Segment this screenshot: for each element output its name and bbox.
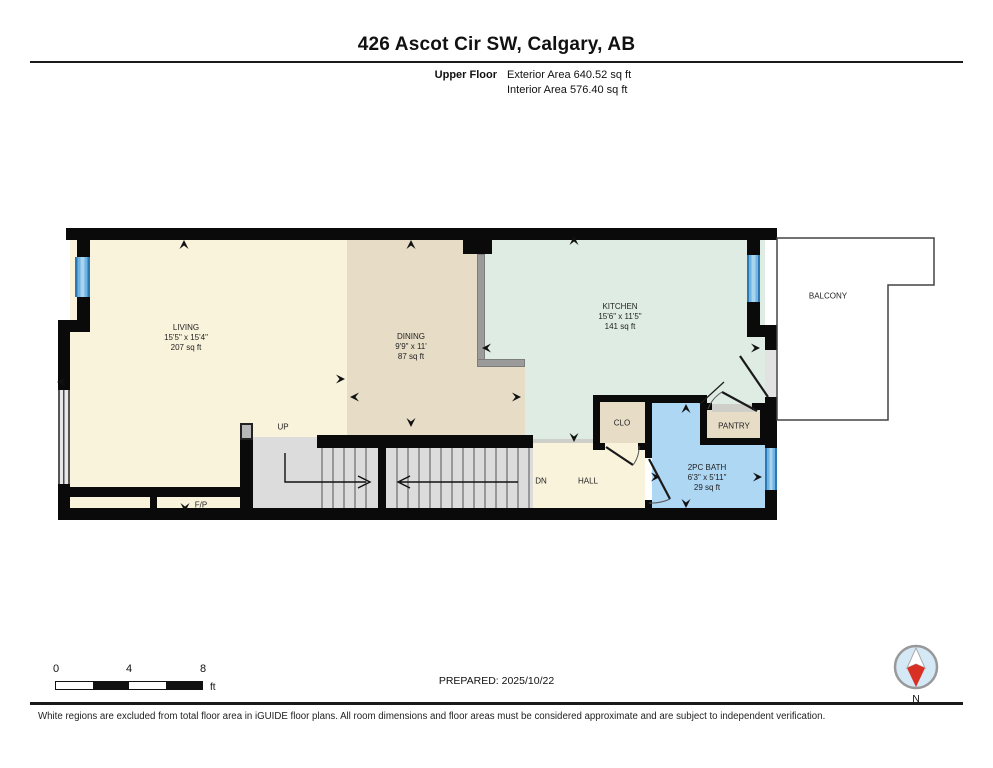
down-label: DN [535, 477, 547, 486]
dim-arrow-living-bottom [181, 503, 190, 512]
bath-label: 2PC BATH 6'3" x 5'11" 29 sq ft [688, 463, 727, 493]
closet-door-arc [633, 446, 639, 465]
pantry-door-leaf [722, 392, 757, 411]
scale-tick-0: 0 [53, 663, 59, 675]
dim-arrow-bath-bottom [682, 499, 691, 508]
dim-arrow-dining-top [407, 240, 416, 249]
stair-treads-right [397, 448, 529, 508]
living-name: LIVING [164, 323, 208, 333]
dim-arrow-dining-left [350, 393, 359, 402]
bath-door-leaf [649, 459, 670, 499]
dining-name: DINING [395, 332, 427, 342]
dim-arrow-dining-bottom [407, 418, 416, 427]
dim-arrow-kitchen-left [482, 344, 491, 353]
prepared-date: PREPARED: 2025/10/22 [0, 675, 993, 687]
stair-treads-left [322, 448, 366, 508]
dim-arrow-bath-left [651, 473, 660, 482]
closet-door-leaf [606, 447, 633, 465]
pantry-label: PANTRY [718, 422, 750, 431]
dim-arrow-dining-right [512, 393, 521, 402]
living-label: LIVING 15'5" x 15'4" 207 sq ft [164, 323, 208, 353]
balcony-outline [777, 238, 934, 420]
bath-name: 2PC BATH [688, 463, 727, 473]
dim-arrow-living-top [180, 240, 189, 249]
dim-arrow-kitchen-right [751, 344, 760, 353]
scale-tick-8: 8 [200, 663, 206, 675]
balcony-door-leaf [740, 356, 768, 397]
kitchen-name: KITCHEN [598, 302, 641, 312]
dim-arrow-kitchen-top [570, 236, 579, 245]
up-label: UP [277, 423, 288, 432]
dim-arrow-living-right [336, 375, 345, 384]
closet-label: CLO [614, 419, 630, 428]
bath-door-arc [649, 499, 670, 503]
dining-label: DINING 9'9" x 11' 87 sq ft [395, 332, 427, 362]
dim-arrow-bath-top [682, 404, 691, 413]
bath-dims: 6'3" x 5'11" [688, 473, 727, 483]
bath-area: 29 sq ft [688, 483, 727, 493]
stair-down-arrow [398, 476, 518, 488]
living-dims: 15'5" x 15'4" [164, 333, 208, 343]
dim-arrow-living-left [57, 378, 66, 387]
footer-rule [30, 702, 963, 705]
balcony-label: BALCONY [809, 292, 847, 301]
dining-area: 87 sq ft [395, 352, 427, 362]
fireplace-label: F/P [195, 501, 207, 510]
kitchen-area: 141 sq ft [598, 322, 641, 332]
kitchen-dims: 15'6" x 11'5" [598, 312, 641, 322]
living-area: 207 sq ft [164, 343, 208, 353]
dim-arrow-bath-right [753, 473, 762, 482]
dining-dims: 9'9" x 11' [395, 342, 427, 352]
plan-overlay [0, 0, 993, 768]
kitchen-label: KITCHEN 15'6" x 11'5" 141 sq ft [598, 302, 641, 332]
scale-tick-4: 4 [126, 663, 132, 675]
disclaimer-text: White regions are excluded from total fl… [38, 711, 825, 722]
hall-label: HALL [578, 477, 598, 486]
dim-arrow-kitchen-bottom [570, 433, 579, 442]
stair-up-arrow [285, 453, 370, 488]
floorplan-page: 426 Ascot Cir SW, Calgary, AB Upper Floo… [0, 0, 993, 768]
